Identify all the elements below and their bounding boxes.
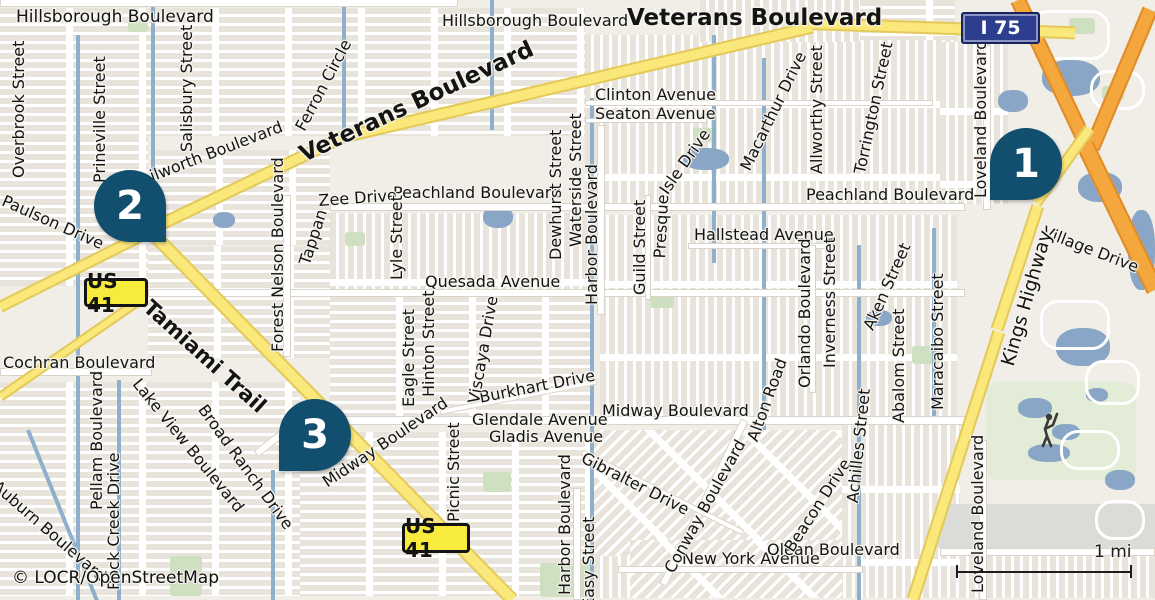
street-label: Hillsborough Boulevard: [442, 13, 628, 30]
route-shield-us41-south: US 41: [402, 523, 470, 553]
street-label: Abalom Street: [891, 309, 908, 423]
street-label: Easy Street: [581, 517, 598, 600]
street-label: Peachland Boulevard: [393, 185, 561, 202]
road-label-veterans-top: Veterans Boulevard: [627, 6, 882, 30]
street-label: Presque: [652, 194, 672, 259]
street-label: Cochran Boulevard: [3, 355, 155, 372]
map-marker-2[interactable]: 2: [94, 170, 166, 242]
street-label: Seaton Avenue: [595, 106, 716, 123]
street-label: Maracaibo Street: [930, 273, 947, 410]
street-label: Eagle Street: [401, 309, 418, 407]
map-marker-3[interactable]: 3: [279, 399, 351, 471]
street-label: Loveland Boulevard: [970, 435, 987, 593]
street-label: Inverness Street: [822, 237, 839, 368]
street-label: Hinton Street: [421, 290, 438, 397]
street-label: Dewhurst Street: [548, 130, 565, 260]
scale-bar-tick-right: [1130, 565, 1132, 578]
street-label: Picnic Street: [446, 422, 463, 522]
scale-bar: [956, 571, 1132, 573]
street-label: Overbrook Street: [11, 41, 28, 178]
street-label: Midway Boulevard: [602, 403, 749, 420]
street-label: Orlando Boulevard: [797, 238, 814, 388]
street-label: Guild Street: [632, 200, 649, 295]
street-label: Loveland Boulevard: [973, 40, 990, 198]
street-label: Quesada Avenue: [425, 274, 560, 291]
golfer-icon: [1034, 412, 1060, 448]
marker-number: 3: [301, 412, 329, 458]
map-canvas[interactable]: Hillsborough BoulevardHillsborough Boule…: [0, 0, 1155, 600]
street-label: Allworthy Street: [809, 45, 826, 174]
marker-number: 2: [116, 183, 144, 229]
street-label: Gladis Avenue: [489, 429, 603, 446]
route-shield-us41-north: US 41: [84, 278, 148, 307]
map-attribution: © LOCR/OpenStreetMap: [12, 568, 219, 588]
street-label: Forest Nelson Boulevard: [270, 157, 287, 352]
street-label: Harbor Boulevard: [584, 164, 601, 305]
street-label: Harbor Boulevard: [557, 454, 574, 595]
route-shield-i75: I 75: [961, 12, 1040, 44]
street-label: Peachland Boulevard: [806, 187, 974, 204]
street-label: Lyle Street: [389, 195, 406, 280]
street-label: Prineville Street: [92, 56, 109, 183]
scale-label: 1 mi: [1094, 544, 1132, 562]
street-label: Salisbury Street: [179, 25, 196, 152]
map-marker-1[interactable]: 1: [990, 128, 1062, 200]
street-label: Clinton Avenue: [595, 87, 716, 104]
scale-bar-tick-left: [956, 565, 958, 578]
marker-number: 1: [1012, 141, 1040, 187]
